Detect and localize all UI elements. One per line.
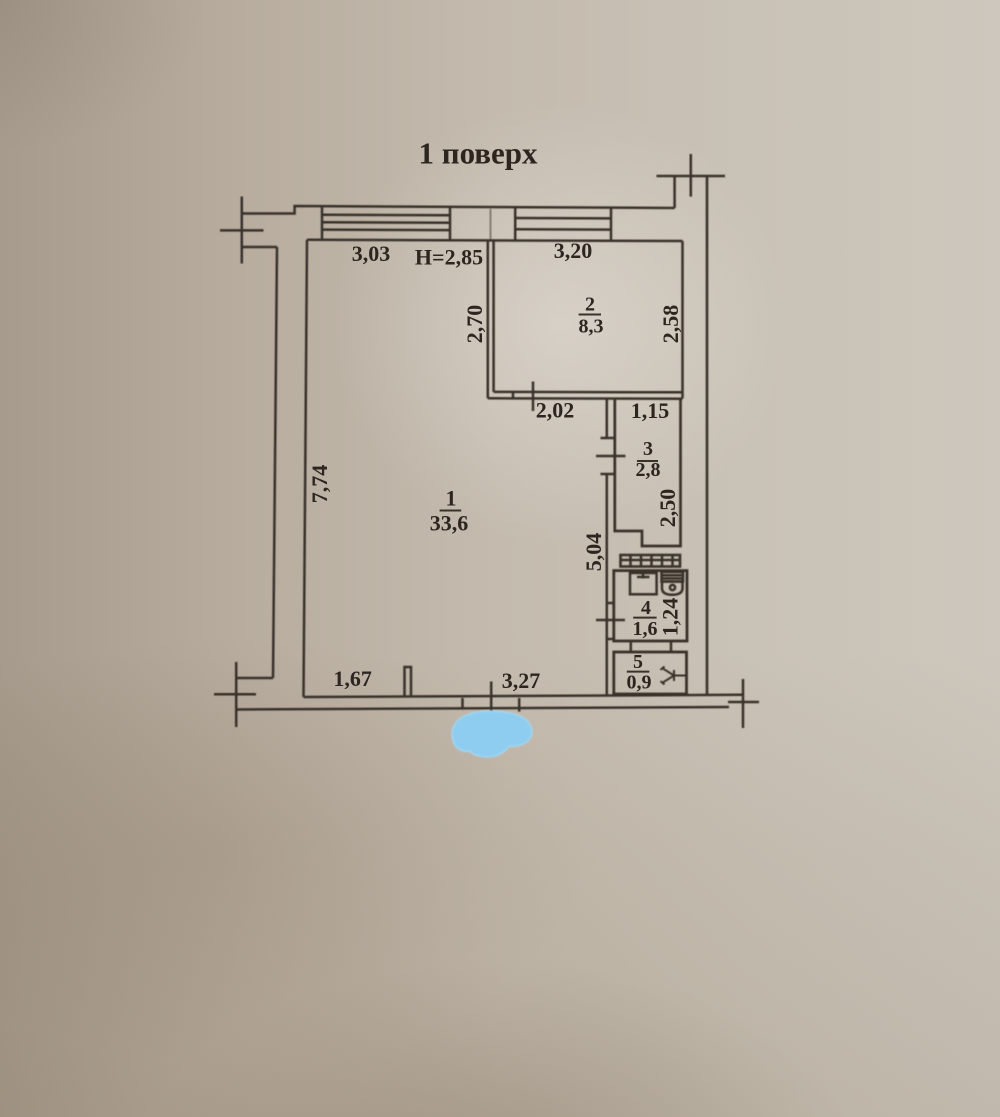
- svg-text:1: 1: [446, 486, 457, 511]
- svg-text:8,3: 8,3: [579, 316, 604, 338]
- svg-text:3,03: 3,03: [352, 241, 391, 266]
- svg-text:3,20: 3,20: [554, 238, 593, 263]
- svg-text:2,50: 2,50: [655, 489, 680, 528]
- svg-text:5,04: 5,04: [581, 533, 606, 572]
- svg-text:2,8: 2,8: [636, 459, 661, 481]
- svg-text:3: 3: [643, 438, 653, 460]
- svg-text:2,70: 2,70: [462, 305, 487, 344]
- svg-text:Н=2,85: Н=2,85: [415, 245, 483, 270]
- svg-text:7,74: 7,74: [307, 465, 332, 504]
- svg-text:2,58: 2,58: [658, 305, 683, 344]
- svg-text:2,02: 2,02: [536, 398, 575, 423]
- svg-text:1,15: 1,15: [631, 398, 670, 423]
- svg-text:1 поверх: 1 поверх: [418, 136, 538, 171]
- svg-text:33,6: 33,6: [430, 511, 469, 536]
- svg-text:4: 4: [641, 597, 651, 619]
- svg-text:2: 2: [585, 294, 595, 316]
- svg-text:0,9: 0,9: [627, 672, 652, 694]
- svg-text:1,67: 1,67: [333, 666, 372, 691]
- svg-text:5: 5: [633, 651, 643, 673]
- svg-text:3,27: 3,27: [502, 668, 541, 693]
- svg-text:1,6: 1,6: [633, 618, 658, 640]
- svg-text:1,24: 1,24: [658, 598, 683, 637]
